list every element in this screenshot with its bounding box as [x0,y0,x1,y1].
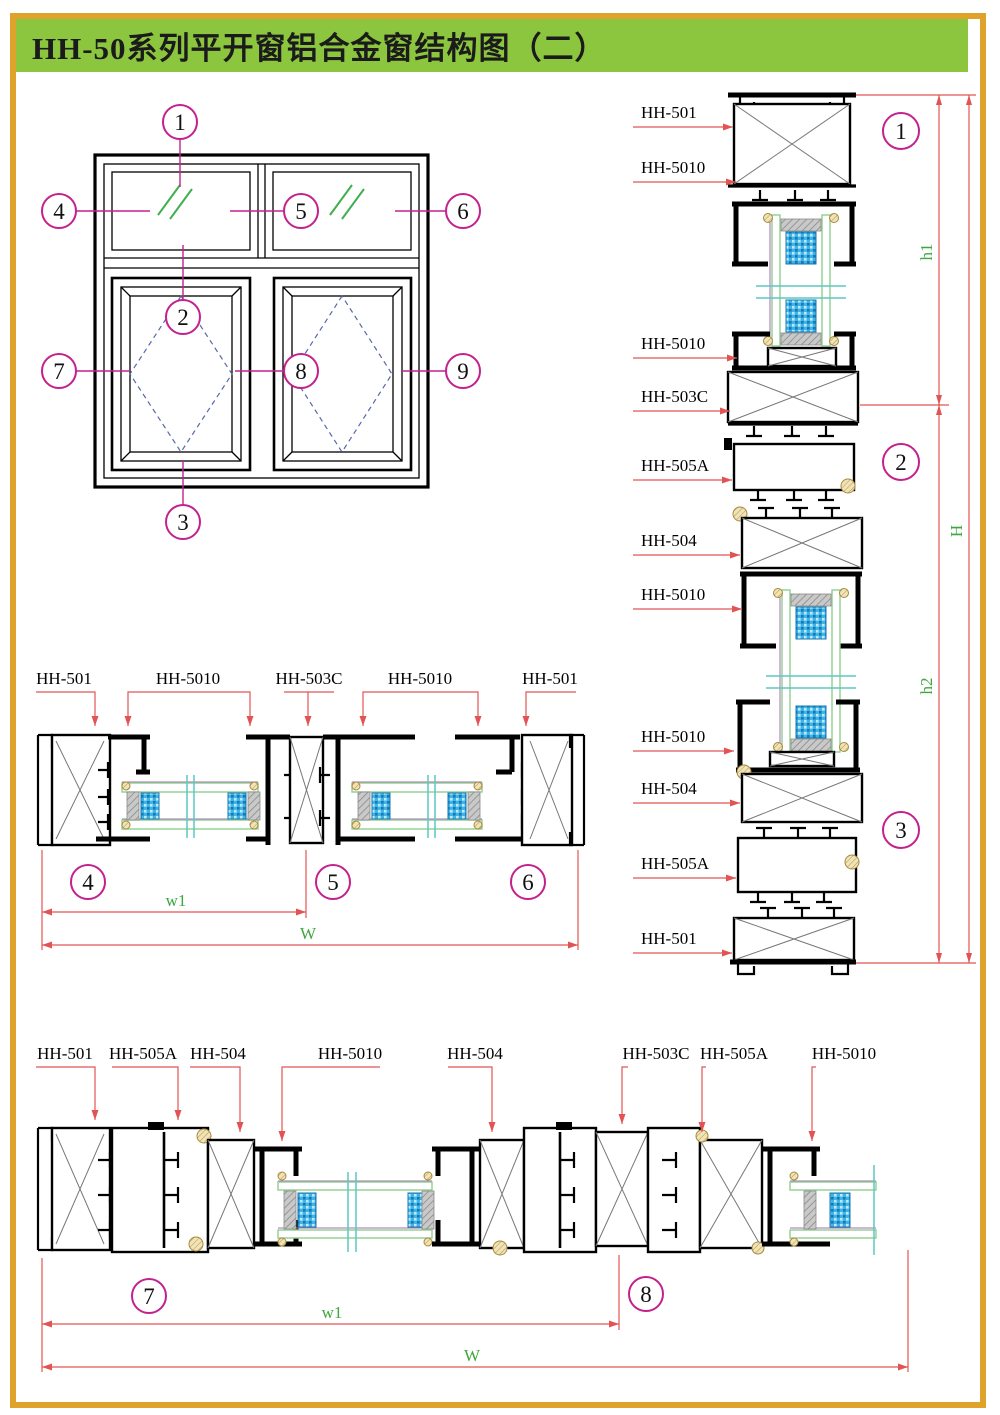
marker-number: 4 [53,199,65,224]
profile-label: HH-5010 [388,669,452,688]
profile-label: HH-5010 [641,727,705,746]
dimension-label-w1: w1 [166,891,187,910]
profile-label: HH-5010 [318,1044,382,1063]
profile-labels: HH-501 HH-5010 HH-5010 HH-503C HH-505A H… [633,103,742,953]
marker-number: 5 [295,199,307,224]
dimension-label-h2: h2 [917,678,936,695]
profile-labels: HH-501 HH-5010 HH-503C HH-5010 HH-501 [36,669,578,726]
profile-label: HH-501 [641,103,697,122]
glass-symbol-left [158,185,192,219]
marker-number: 8 [295,359,307,384]
profile-label: HH-5010 [641,585,705,604]
detail-marker-3: 3 [166,505,200,539]
profile-label: HH-505A [641,456,710,475]
detail-marker-2-section: 2 [883,444,919,480]
marker-number: 5 [327,870,339,895]
glass-symbol-right [330,185,364,219]
dimension-label-w1: w1 [322,1303,343,1322]
vertical-section: HH-501 HH-5010 HH-5010 HH-503C HH-505A H… [633,95,976,974]
elevation-view: 1 2 3 4 5 6 7 8 9 [42,105,480,539]
bottom-horizontal-section: HH-501 HH-505A HH-504 HH-5010 HH-504 HH-… [36,1044,908,1372]
profile-label: HH-503C [641,387,708,406]
middle-dimensions: w1 W [42,850,578,950]
detail-marker-3-section: 3 [883,812,919,848]
profile-label: HH-505A [641,854,710,873]
cad-drawing: 1 2 3 4 5 6 7 8 9 [0,0,1000,1415]
detail-marker-1: 1 [163,105,197,139]
dimension-label-W: W [300,924,317,943]
bottom-dimensions: w1 W [42,1250,908,1372]
profile-label: HH-505A [109,1044,178,1063]
profile-label: HH-5010 [641,334,705,353]
detail-marker-7: 7 [42,354,76,388]
detail-marker-6-section: 6 [511,865,545,899]
marker-number: 2 [895,450,907,475]
middle-horizontal-section: HH-501 HH-5010 HH-503C HH-5010 HH-501 4 … [36,669,584,950]
marker-number: 2 [177,305,189,330]
glazing-unit [278,1172,434,1252]
detail-marker-1-section: 1 [883,113,919,149]
drawing-sheet: HH-50系列平开窗铝合金窗结构图（二） [0,0,1000,1415]
detail-marker-7-section: 7 [132,1279,166,1313]
marker-number: 7 [143,1284,155,1309]
detail-marker-5-section: 5 [316,865,350,899]
marker-number: 9 [457,359,469,384]
marker-number: 3 [177,510,189,535]
detail-marker-4-section: 4 [71,865,105,899]
glazing-unit [122,775,260,838]
profile-label: HH-5010 [641,158,705,177]
profile-label: HH-503C [275,669,342,688]
profile-label: HH-503C [622,1044,689,1063]
marker-number: 3 [895,818,907,843]
profile-label: HH-501 [522,669,578,688]
profile-label: HH-501 [37,1044,93,1063]
glazing-unit [756,214,846,347]
profile-label: HH-504 [641,779,697,798]
glazing-unit [352,775,482,838]
profile-label: HH-501 [641,929,697,948]
marker-number: 6 [457,199,469,224]
detail-marker-8-section: 8 [629,1277,663,1311]
detail-marker-8: 8 [284,354,318,388]
marker-number: 4 [82,870,94,895]
profile-label: HH-501 [36,669,92,688]
dimension-label-W: W [464,1346,481,1365]
detail-marker-4: 4 [42,194,76,228]
profile-label: HH-504 [447,1044,503,1063]
profile-label: HH-504 [641,531,697,550]
profile-label: HH-5010 [156,669,220,688]
profile-label: HH-505A [700,1044,769,1063]
marker-number: 1 [895,119,907,144]
dimension-label-H: H [947,525,966,537]
glazing-unit [766,589,856,753]
detail-marker-2: 2 [166,300,200,334]
profile-label: HH-504 [190,1044,246,1063]
profile-label: HH-5010 [812,1044,876,1063]
dimension-label-h1: h1 [917,244,936,261]
marker-number: 1 [174,110,186,135]
detail-marker-9: 9 [446,354,480,388]
marker-number: 8 [640,1282,652,1307]
marker-number: 6 [522,870,534,895]
detail-marker-5: 5 [284,194,318,228]
marker-number: 7 [53,359,65,384]
detail-marker-6: 6 [446,194,480,228]
